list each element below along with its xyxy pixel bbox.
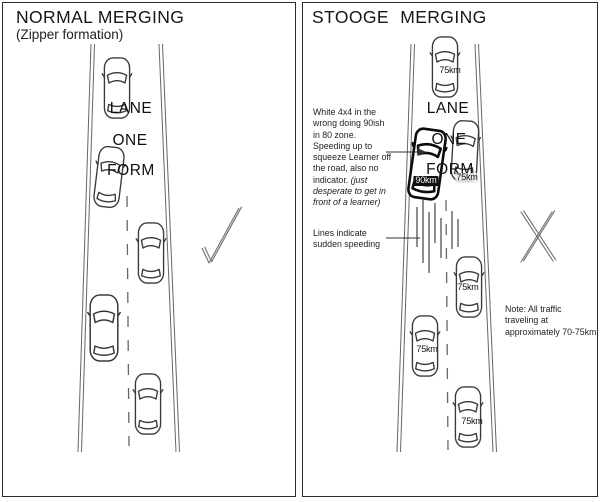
- lane-divider-dashed-right: [446, 200, 448, 450]
- car-speed-label: 75km: [439, 66, 460, 76]
- car-speed-label: 75km: [457, 283, 478, 293]
- road-word-lane-right: LANE: [417, 100, 479, 118]
- title-normal-merging: NORMAL MERGING: [16, 7, 184, 28]
- car-icon: [136, 223, 166, 283]
- checkmark-icon: [202, 207, 242, 263]
- car-icon: [88, 295, 120, 361]
- suv-speed-label: 90km: [413, 176, 438, 186]
- x-icon: [521, 211, 556, 262]
- car-speed-label: 75km: [416, 345, 437, 355]
- car-icon: [133, 374, 163, 434]
- sudden-speeding-lines: [417, 199, 458, 273]
- annotation-speed-lines: Lines indicate sudden speeding: [313, 228, 395, 251]
- road-word-one-right: ONE: [418, 131, 480, 149]
- car-speed-label: 75km: [461, 417, 482, 427]
- road-word-lane-left: LANE: [100, 100, 162, 118]
- learner-speed-label: 75km: [455, 173, 478, 183]
- title-stooge-merging: STOOGE MERGING: [312, 7, 487, 28]
- annotation-4x4-text: White 4x4 in the wrong doing 90ish in 80…: [313, 107, 391, 185]
- road-word-one-left: ONE: [99, 132, 161, 150]
- subtitle-zipper-formation: (Zipper formation): [16, 27, 123, 42]
- stooge-merging-diagram: NORMAL MERGING (Zipper formation) STOOGE…: [0, 0, 600, 502]
- lane-divider-dashed-left: [127, 196, 129, 446]
- diagram-artwork: [0, 0, 600, 502]
- road-word-form-left: FORM: [100, 162, 162, 180]
- annotation-4x4: White 4x4 in the wrong doing 90ish in 80…: [313, 107, 392, 208]
- traffic-note: Note: All traffic traveling at approxima…: [505, 304, 597, 338]
